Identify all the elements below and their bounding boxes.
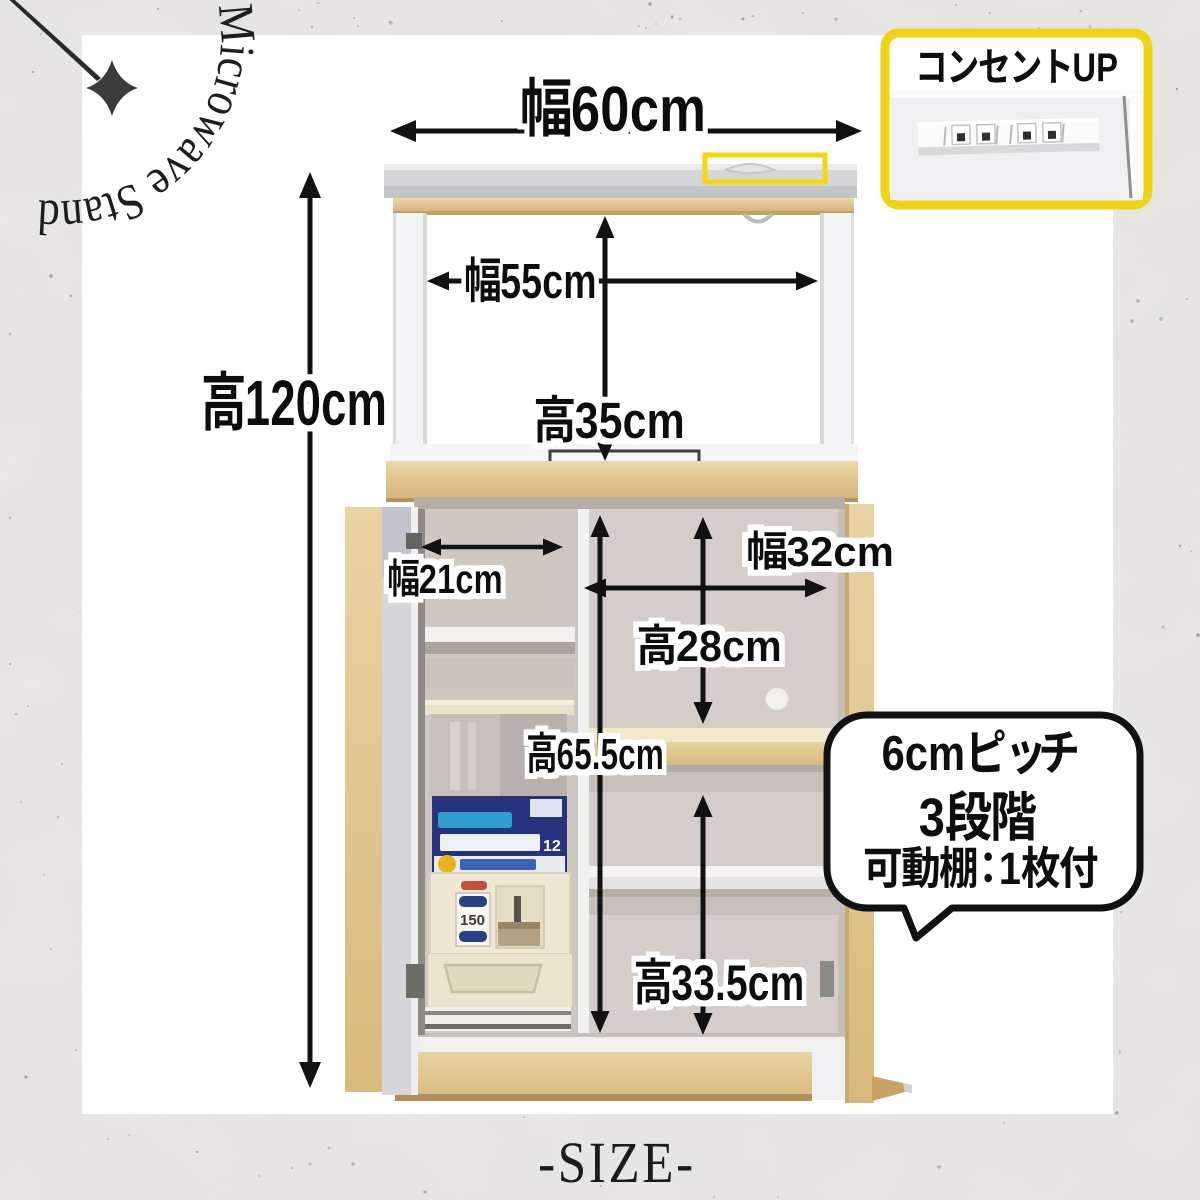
svg-text:1: 1 — [999, 844, 1021, 894]
svg-text:3: 3 — [919, 787, 945, 848]
svg-text:12: 12 — [543, 838, 561, 855]
svg-text:55cm: 55cm — [500, 254, 596, 309]
svg-text:35cm: 35cm — [575, 393, 685, 450]
svg-text:33.5cm: 33.5cm — [671, 954, 804, 1011]
svg-text:21cm: 21cm — [419, 555, 503, 601]
svg-text:32cm: 32cm — [787, 528, 894, 575]
svg-text:-SIZE-: -SIZE- — [538, 1130, 696, 1195]
svg-text:60cm: 60cm — [571, 74, 706, 145]
svg-text:120cm: 120cm — [245, 367, 387, 438]
svg-text:65.5cm: 65.5cm — [556, 730, 663, 779]
svg-text:150: 150 — [460, 912, 485, 929]
svg-text:UP: UP — [1072, 45, 1118, 90]
svg-text:6cm: 6cm — [882, 726, 965, 781]
svg-text:28cm: 28cm — [676, 622, 782, 671]
